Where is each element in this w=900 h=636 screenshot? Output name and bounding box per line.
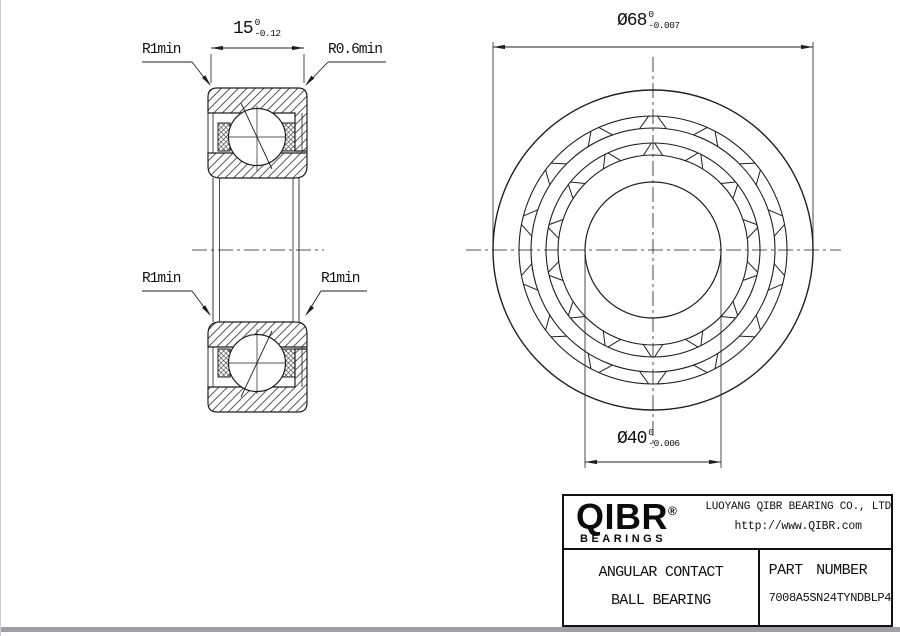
- title-block-header-row: QIBR® BEARINGS LUOYANG QIBR BEARING CO.,…: [564, 496, 891, 550]
- bearing-drawing-sheet: 15 0 -0.12 Ø68 0 -0.007 Ø40 0 -0.006 R1m…: [0, 0, 900, 636]
- outer-diameter-dimension: Ø68 0 -0.007: [617, 12, 680, 31]
- dimension-value: Ø40: [617, 430, 646, 448]
- company-name: LUOYANG QIBR BEARING CO., LTD: [705, 501, 891, 513]
- part-number-cell: PART NUMBER 7008A5SN24TYNDBLP4: [760, 550, 891, 627]
- registered-trademark-icon: ®: [668, 504, 677, 518]
- product-type-cell: ANGULAR CONTACT BALL BEARING: [564, 550, 760, 627]
- r1min-label-top-left: R1min: [142, 43, 181, 58]
- title-block: QIBR® BEARINGS LUOYANG QIBR BEARING CO.,…: [562, 494, 893, 627]
- brand-name: QIBR®: [576, 499, 705, 535]
- r06min-label-top-right: R0.6min: [328, 43, 382, 58]
- r1min-label-mid-left: R1min: [142, 272, 181, 287]
- page-edge-line: [0, 0, 1, 636]
- r1min-label-mid-right: R1min: [321, 272, 360, 287]
- dimension-value: 15: [233, 20, 253, 38]
- brand-logo: QIBR® BEARINGS: [564, 496, 705, 545]
- part-number-label: PART NUMBER: [769, 562, 891, 579]
- page-edge-shadow: [0, 627, 900, 632]
- section-width-dimension: 15 0 -0.12: [233, 20, 281, 39]
- dimension-value: Ø68: [617, 12, 646, 30]
- title-block-bottom-row: ANGULAR CONTACT BALL BEARING PART NUMBER…: [564, 550, 891, 627]
- dimension-tolerance: 0 -0.006: [648, 428, 679, 449]
- part-number-value: 7008A5SN24TYNDBLP4: [769, 591, 891, 605]
- bore-diameter-dimension: Ø40 0 -0.006: [617, 430, 680, 449]
- brand-tagline: BEARINGS: [580, 533, 705, 545]
- company-website: http://www.QIBR.com: [705, 520, 891, 533]
- dimension-tolerance: 0 -0.007: [648, 10, 679, 31]
- product-type-line2: BALL BEARING: [564, 592, 758, 609]
- company-info: LUOYANG QIBR BEARING CO., LTD http://www…: [705, 496, 891, 533]
- dimension-tolerance: 0 -0.12: [255, 18, 281, 39]
- product-type-line1: ANGULAR CONTACT: [564, 564, 758, 581]
